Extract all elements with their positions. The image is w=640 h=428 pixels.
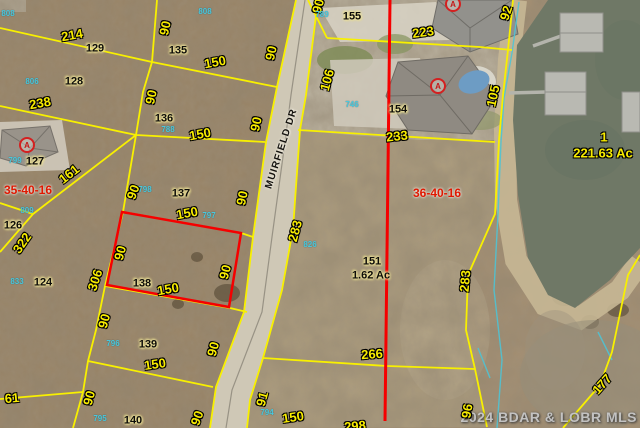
dimension-label: 105 <box>484 84 501 108</box>
dimension-label: 90 <box>234 190 250 207</box>
dimension-label: 90 <box>143 89 159 106</box>
dimension-label: 96 <box>459 403 474 420</box>
dimension-label: 266 <box>361 347 384 361</box>
lot-number-label: 135 <box>169 46 187 57</box>
parcel-id-label: 795 <box>93 415 106 423</box>
dimension-label: 90 <box>112 244 128 261</box>
dimension-label: 90 <box>81 389 97 406</box>
dimension-label: 90 <box>248 116 264 133</box>
dimension-label: 61 <box>4 391 20 405</box>
dimension-label: 214 <box>60 27 84 44</box>
house-a-marker: A <box>430 78 446 94</box>
dimension-label: 298 <box>344 419 367 428</box>
dimension-label: 150 <box>188 126 212 143</box>
dimension-label: 306 <box>85 268 104 293</box>
plat-map: MUIRFIELD DR 2024 BDAR & LOBR MLS 129135… <box>0 0 640 428</box>
dimension-label: 91 <box>254 390 270 407</box>
section-township-label: 36-40-16 <box>413 187 461 199</box>
dimension-label: 223 <box>411 24 434 40</box>
dimension-label: 92 <box>498 4 515 22</box>
lot-number-label: 139 <box>139 340 157 351</box>
parcel-id-label: 797 <box>202 212 215 220</box>
dimension-label: 90 <box>188 409 205 427</box>
parcel-id-label: 799 <box>8 157 21 165</box>
lot-number-label: 129 <box>86 44 104 55</box>
lot-number-label: 155 <box>343 12 361 23</box>
dimension-label: 90 <box>217 263 233 280</box>
lot-number-label: 137 <box>172 189 190 200</box>
dimension-label: 150 <box>203 54 227 71</box>
dimension-label: 233 <box>386 128 409 143</box>
dimension-label: 90 <box>157 20 173 37</box>
lot-number-label: 126 <box>4 221 22 232</box>
parcel-id-label: 796 <box>106 340 119 348</box>
dimension-label: 161 <box>56 162 81 186</box>
parcel-id-label: 746 <box>345 101 358 109</box>
lot-number-label: 138 <box>133 279 151 290</box>
dimension-label: 238 <box>28 95 52 112</box>
parcel-id-label: 833 <box>10 278 23 286</box>
section-township-label: 35-40-16 <box>4 184 52 196</box>
parcel-id-label: 789 <box>315 11 328 19</box>
dimension-label: 283 <box>286 219 304 243</box>
parcel-id-label: 826 <box>303 241 316 249</box>
parcel-id-label: 809 <box>20 207 33 215</box>
label-overlay: MUIRFIELD DR 2024 BDAR & LOBR MLS 129135… <box>0 0 640 428</box>
lot-number-label: 136 <box>155 114 173 125</box>
mls-watermark: 2024 BDAR & LOBR MLS <box>461 409 637 425</box>
lot-number-label: 1.62 Ac <box>352 271 390 282</box>
dimension-label: 90 <box>205 340 221 357</box>
street-name-label: MUIRFIELD DR <box>264 108 299 191</box>
parcel-id-label: 808 <box>198 8 211 16</box>
lot-number-label: 151 <box>363 257 381 268</box>
parcel-id-label: 808 <box>1 10 14 18</box>
dimension-label: 221.63 Ac <box>573 147 633 160</box>
lot-number-label: 140 <box>124 416 142 427</box>
dimension-label: 150 <box>281 409 304 425</box>
lot-number-label: 127 <box>26 157 44 168</box>
dimension-label: 150 <box>175 205 199 222</box>
dimension-label: 322 <box>10 230 33 255</box>
parcel-id-label: 798 <box>138 186 151 194</box>
dimension-label: 90 <box>263 45 279 62</box>
dimension-label: 150 <box>143 356 166 372</box>
dimension-label: 90 <box>96 312 112 329</box>
parcel-id-label: 788 <box>161 126 174 134</box>
dimension-label: 283 <box>458 270 473 293</box>
parcel-id-label: 794 <box>260 409 273 417</box>
dimension-label: 106 <box>318 68 336 92</box>
dimension-label: 177 <box>590 372 614 397</box>
lot-number-label: 154 <box>389 105 407 116</box>
dimension-label: 1 <box>600 131 607 144</box>
dimension-label: 150 <box>156 281 180 298</box>
lot-number-label: 128 <box>65 77 83 88</box>
house-a-marker: A <box>19 137 35 153</box>
lot-number-label: 124 <box>34 278 52 289</box>
house-a-marker: A <box>445 0 461 12</box>
parcel-id-label: 806 <box>25 78 38 86</box>
